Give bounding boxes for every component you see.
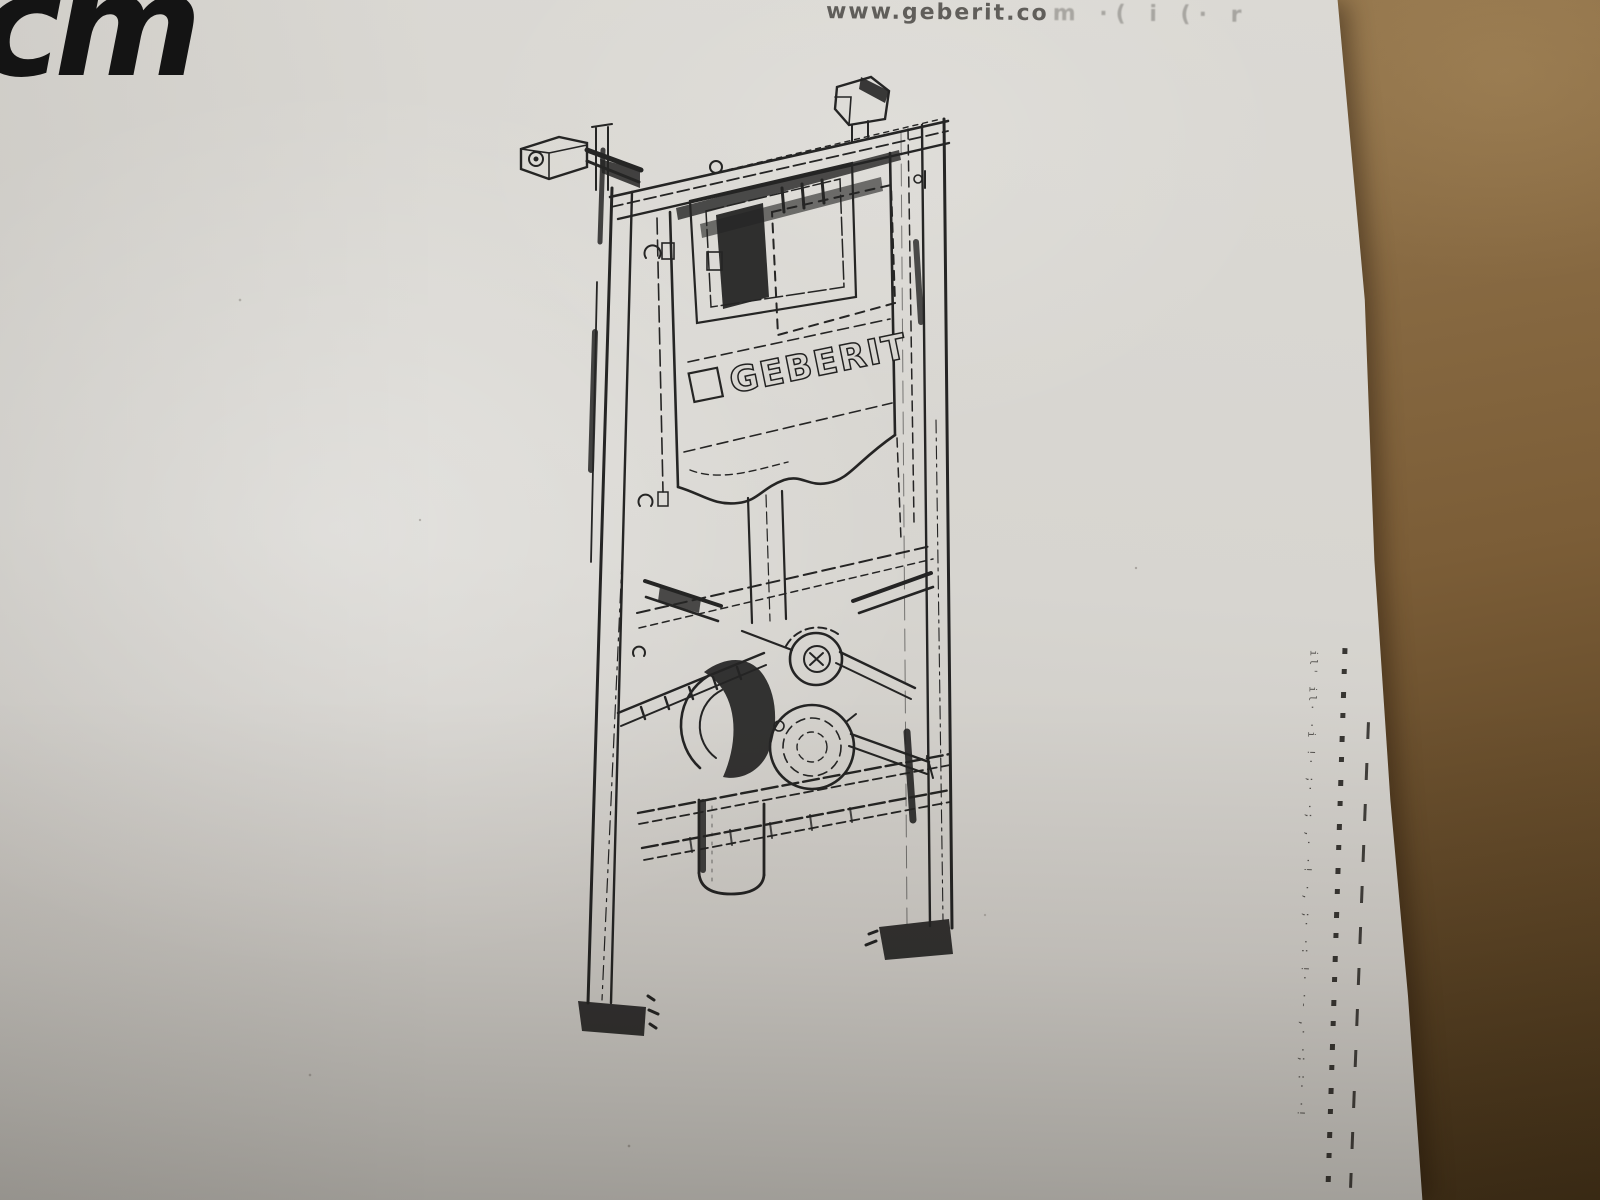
geberit-frame-diagram: GEBERIT — [0, 0, 1600, 1200]
flush-pipe — [748, 491, 786, 623]
geberit-logo-text: GEBERIT — [726, 327, 911, 402]
wall-bracket-right — [835, 77, 889, 142]
access-panel-dashed-outline — [772, 185, 895, 335]
drain-pipe — [699, 800, 764, 894]
photo-of-instruction-sheet: cm www.geberit.com ·( i (· r — [0, 0, 1600, 1200]
frame-left-rail — [578, 150, 658, 1036]
paper-shadow-wrap: cm www.geberit.com ·( i (· r — [0, 0, 1600, 1200]
frame-top-rail — [610, 119, 949, 238]
geberit-logo: GEBERIT — [688, 327, 912, 410]
wall-bracket-left — [521, 124, 641, 190]
frame-right-rail — [866, 119, 953, 960]
paper-sheet: cm www.geberit.com ·( i (· r — [0, 0, 1600, 1200]
outlet-elbow-bend — [681, 660, 775, 778]
